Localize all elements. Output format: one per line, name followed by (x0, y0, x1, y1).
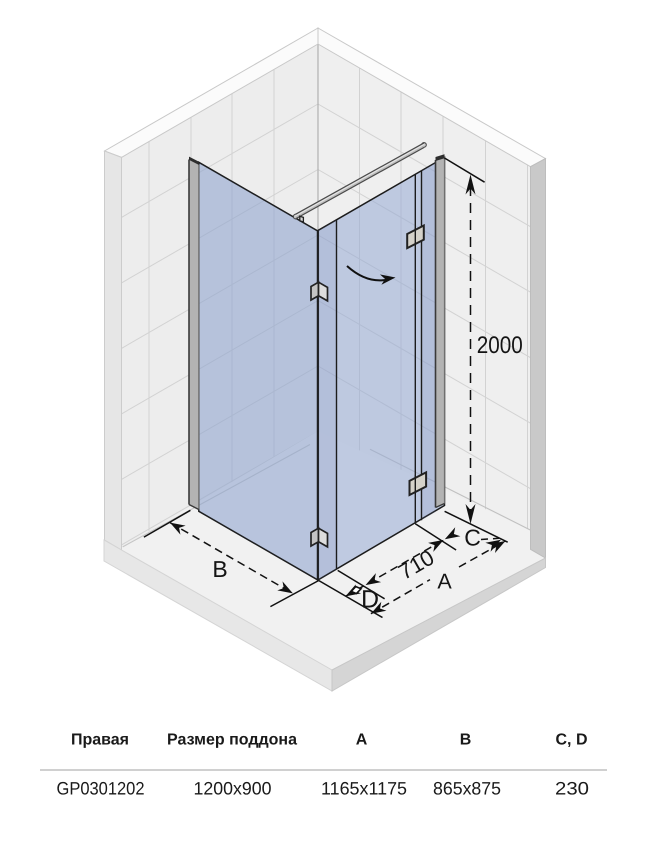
svg-text:D: D (361, 586, 379, 614)
svg-text:GP0301202: GP0301202 (57, 779, 145, 799)
svg-text:1165x1175: 1165x1175 (321, 779, 407, 799)
svg-text:B: B (460, 732, 472, 749)
svg-text:230: 230 (555, 779, 589, 799)
svg-text:2000: 2000 (477, 332, 523, 359)
svg-text:B: B (212, 556, 227, 582)
svg-text:A: A (437, 570, 452, 594)
svg-text:Правая: Правая (71, 732, 129, 749)
svg-text:1200x900: 1200x900 (194, 779, 272, 799)
svg-text:C, D: C, D (556, 732, 588, 749)
svg-text:A: A (356, 732, 368, 749)
svg-text:C: C (464, 525, 481, 551)
svg-text:865x875: 865x875 (433, 779, 501, 799)
svg-text:Размер поддона: Размер поддона (167, 732, 297, 749)
